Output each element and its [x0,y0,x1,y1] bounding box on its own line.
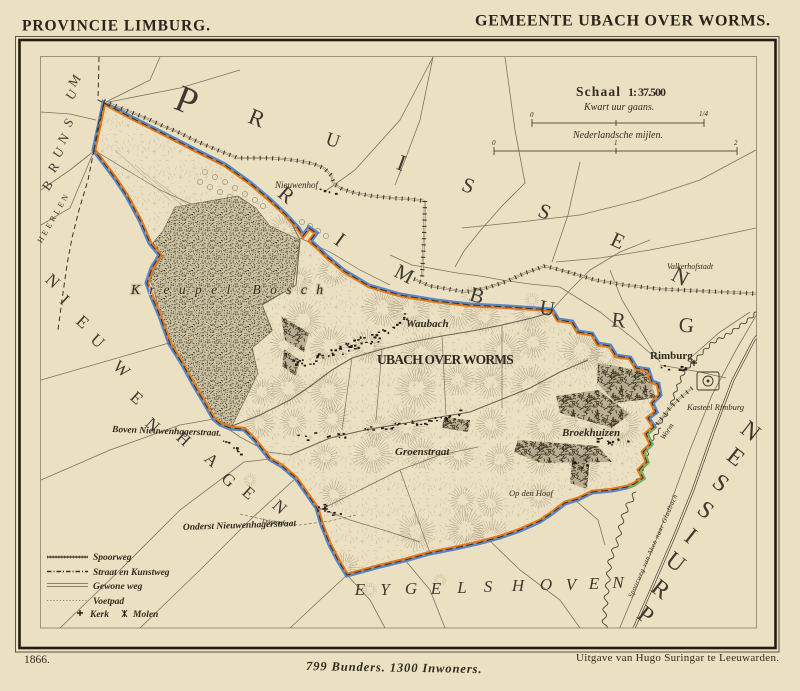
svg-text:S: S [484,577,493,596]
svg-text:Molen: Molen [132,610,158,620]
svg-text:Kwart uur gaans.: Kwart uur gaans. [583,102,654,113]
svg-text:Waubach: Waubach [406,318,449,330]
svg-text:Voetpad: Voetpad [93,597,124,607]
svg-text:2: 2 [734,139,738,147]
svg-text:H: H [511,576,526,595]
svg-text:Straat en Kunstweg: Straat en Kunstweg [93,568,170,578]
svg-text:O: O [540,575,552,594]
svg-text:Kasteel Rimburg: Kasteel Rimburg [686,402,744,412]
svg-text:1: 1 [614,139,618,147]
svg-text:Kerk: Kerk [89,610,109,620]
svg-text:E: E [588,574,600,593]
svg-text:G: G [678,313,695,338]
svg-text:Groenstraat: Groenstraat [395,446,450,458]
svg-text:E: E [354,580,366,599]
svg-text:Spoorweg: Spoorweg [93,553,132,563]
svg-text:Broekhuizen: Broekhuizen [561,427,620,439]
svg-text:0: 0 [492,139,496,147]
svg-text:Gewone weg: Gewone weg [93,582,143,592]
svg-text:Schaal: Schaal [576,84,620,99]
svg-text:PROVINCIE LIMBURG.: PROVINCIE LIMBURG. [22,18,212,35]
svg-text:Y: Y [380,580,391,599]
svg-text:Rimburg: Rimburg [650,350,693,362]
svg-text:GEMEENTE UBACH OVER WORMS.: GEMEENTE UBACH OVER WORMS. [475,13,771,30]
svg-text:UBACH OVER WORMS: UBACH OVER WORMS [377,352,515,367]
svg-text:1: 37.500: 1: 37.500 [628,85,666,99]
svg-text:1866.: 1866. [24,654,50,666]
svg-text:E: E [430,579,442,598]
svg-text:G: G [405,579,417,598]
svg-text:L: L [456,578,466,597]
svg-text:0: 0 [530,111,534,119]
svg-text:1/4: 1/4 [699,110,708,118]
svg-text:Uitgave van Hugo Suringar te L: Uitgave van Hugo Suringar te Leeuwarden. [576,652,779,664]
svg-text:N: N [611,573,625,592]
svg-text:Op den Hoof: Op den Hoof [509,488,555,498]
svg-text:R: R [611,307,627,332]
